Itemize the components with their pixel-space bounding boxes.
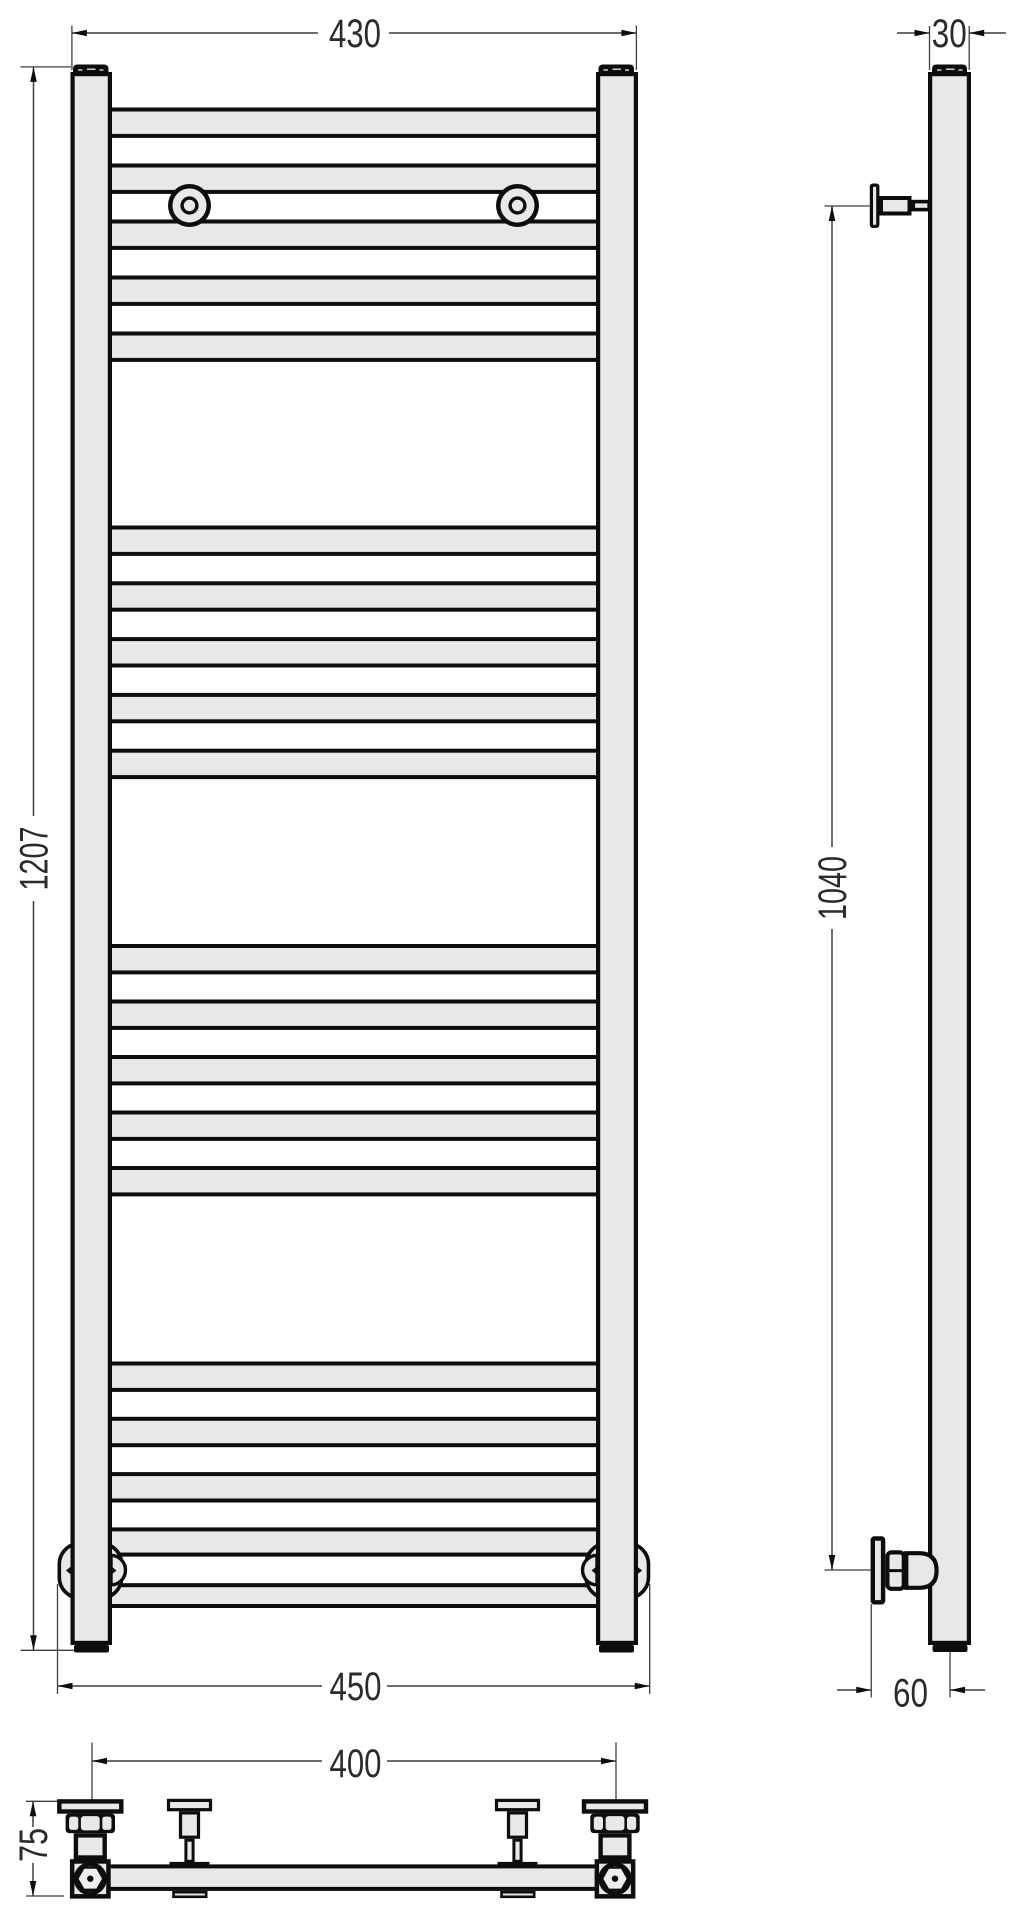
- svg-text:75: 75: [12, 1828, 56, 1862]
- svg-text:1040: 1040: [811, 856, 855, 920]
- svg-text:1207: 1207: [13, 827, 57, 891]
- svg-text:60: 60: [893, 1672, 928, 1716]
- svg-text:430: 430: [329, 12, 381, 56]
- svg-text:30: 30: [932, 12, 967, 56]
- svg-text:450: 450: [330, 1665, 382, 1709]
- svg-text:400: 400: [330, 1742, 382, 1786]
